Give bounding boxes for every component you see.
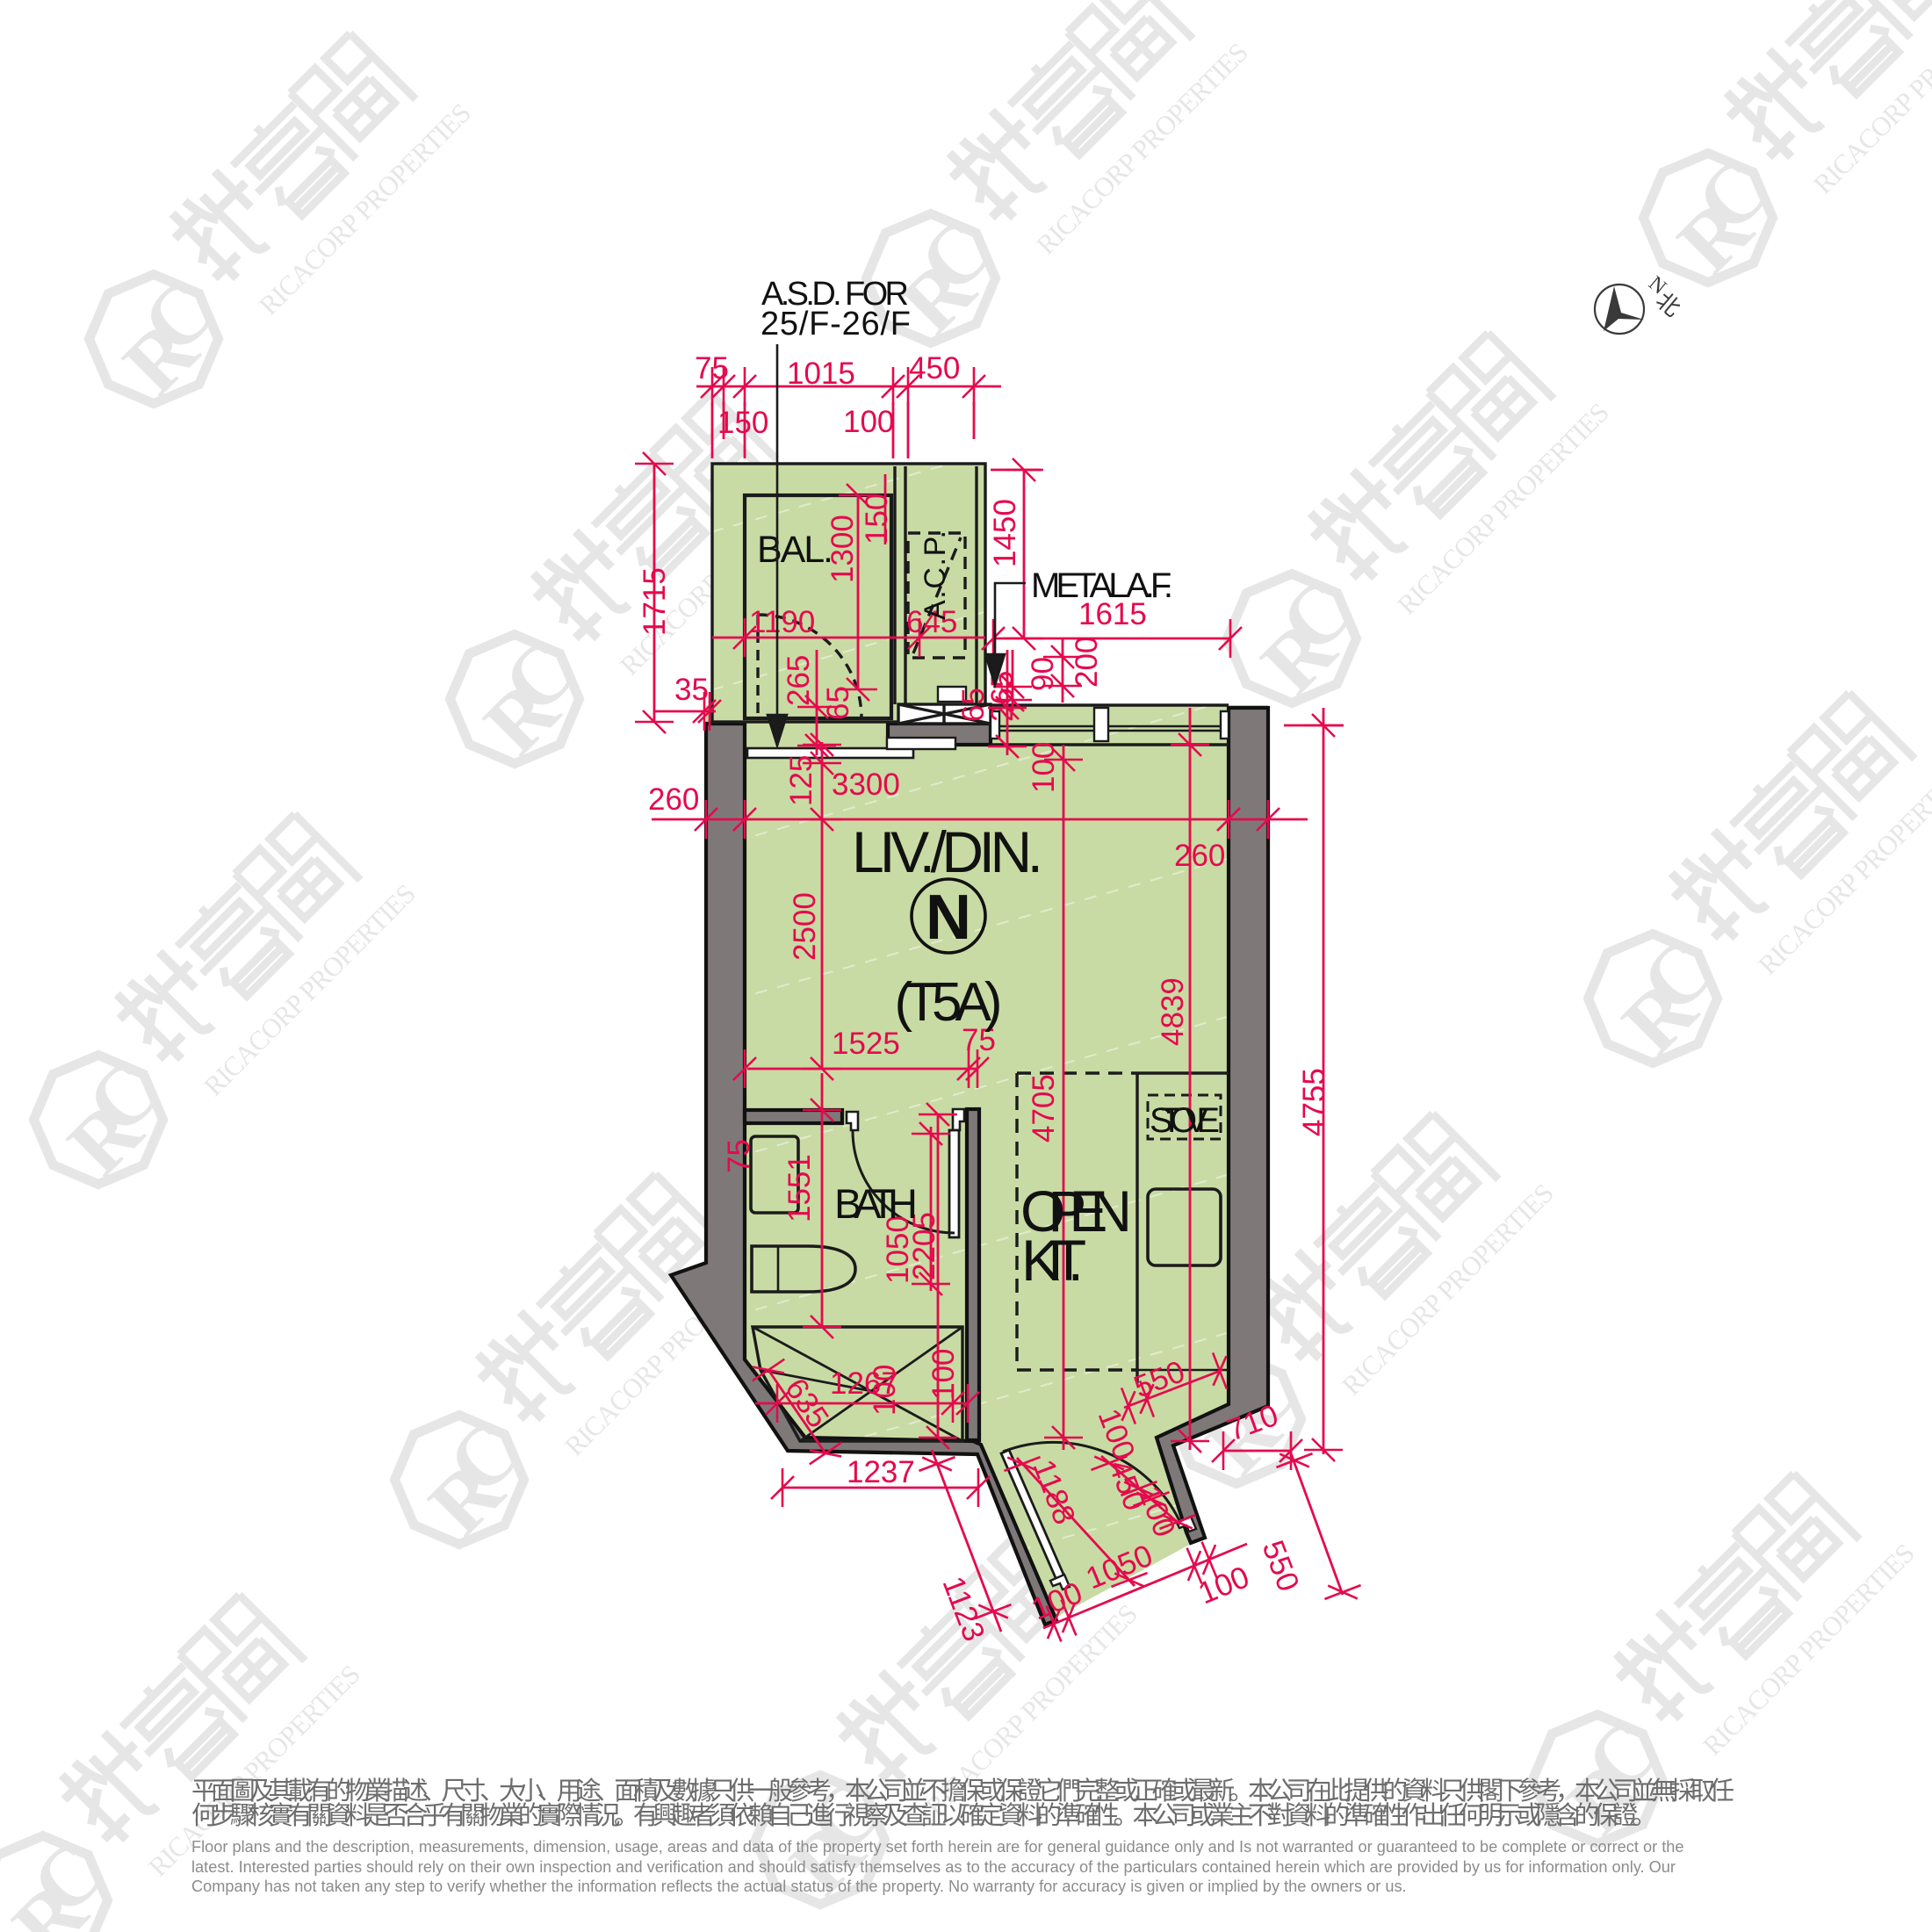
svg-text:150: 150 <box>860 494 894 544</box>
svg-text:STOVE: STOVE <box>1150 1101 1220 1140</box>
svg-text:75: 75 <box>722 1139 756 1173</box>
svg-text:BAL.: BAL. <box>757 529 833 571</box>
svg-text:90: 90 <box>1026 657 1060 691</box>
svg-text:100: 100 <box>1027 742 1061 793</box>
svg-text:265: 265 <box>782 655 816 706</box>
svg-text:100: 100 <box>926 1349 961 1400</box>
svg-text:1237: 1237 <box>847 1455 915 1489</box>
svg-text:1450: 1450 <box>988 499 1022 567</box>
svg-text:4755: 4755 <box>1297 1068 1331 1136</box>
svg-text:1190: 1190 <box>749 605 815 639</box>
svg-text:1015: 1015 <box>787 357 855 391</box>
svg-text:BATH: BATH <box>834 1180 918 1227</box>
svg-text:A.C.P.: A.C.P. <box>919 530 952 620</box>
svg-text:25/F-26/F: 25/F-26/F <box>761 306 911 342</box>
svg-text:65: 65 <box>956 688 991 722</box>
svg-text:260: 260 <box>1174 839 1225 873</box>
svg-text:4705: 4705 <box>1027 1074 1061 1143</box>
svg-text:100: 100 <box>843 405 894 439</box>
svg-text:何步驟核實有關資料是否合乎有關物業的實際情況。有興趣者須依賴: 何步驟核實有關資料是否合乎有關物業的實際情況。有興趣者須依賴自己進行視察及查証以… <box>191 1801 1657 1830</box>
svg-text:150: 150 <box>717 406 768 440</box>
svg-text:N: N <box>926 883 971 953</box>
svg-text:100: 100 <box>868 1365 902 1416</box>
svg-text:1525: 1525 <box>832 1027 900 1061</box>
svg-text:450: 450 <box>909 351 960 386</box>
svg-text:KIT.: KIT. <box>1021 1228 1085 1293</box>
svg-text:75: 75 <box>695 351 729 386</box>
svg-text:METAL A.F.: METAL A.F. <box>1031 566 1173 605</box>
svg-text:LIV./DIN.: LIV./DIN. <box>852 819 1043 884</box>
svg-text:latest. Interested parties sho: latest. Interested parties should rely o… <box>191 1858 1676 1876</box>
svg-text:1551: 1551 <box>782 1154 817 1222</box>
svg-text:Floor plans and the descriptio: Floor plans and the description, measure… <box>191 1838 1684 1856</box>
svg-text:260: 260 <box>648 782 699 817</box>
svg-text:125: 125 <box>784 755 818 806</box>
svg-text:1715: 1715 <box>638 567 672 636</box>
svg-text:35: 35 <box>674 673 709 707</box>
svg-text:(T5A): (T5A) <box>895 972 1003 1033</box>
svg-text:200: 200 <box>1070 637 1104 688</box>
svg-text:2500: 2500 <box>788 892 822 961</box>
svg-text:65: 65 <box>821 686 855 720</box>
svg-text:3300: 3300 <box>832 768 900 802</box>
svg-text:Company has not taken any step: Company has not taken any step to verify… <box>191 1878 1407 1895</box>
svg-text:4839: 4839 <box>1156 977 1190 1046</box>
